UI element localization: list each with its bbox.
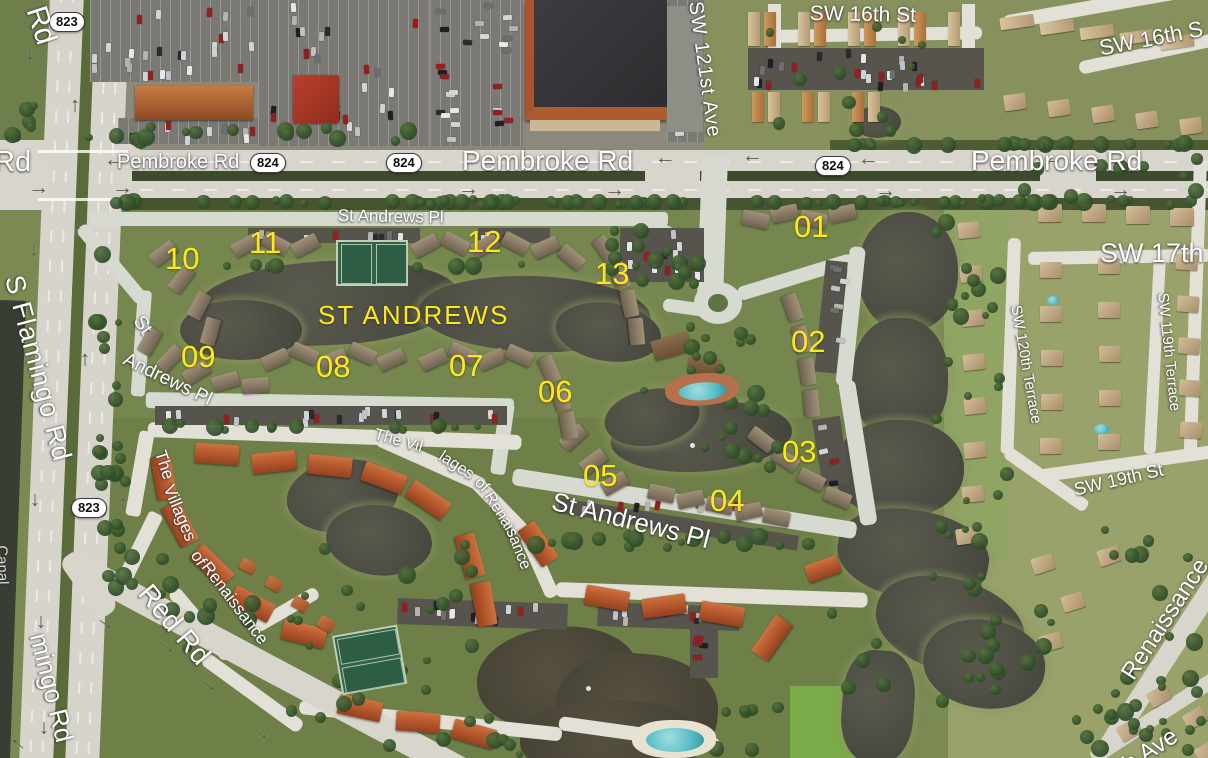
- tree: [701, 443, 709, 451]
- car: [355, 127, 360, 136]
- rd-left-edge-label: Rd: [0, 146, 31, 179]
- car: [503, 35, 512, 41]
- car: [304, 50, 309, 59]
- house: [1176, 295, 1199, 312]
- car: [760, 66, 765, 75]
- tree: [336, 696, 352, 712]
- car: [860, 54, 865, 63]
- parking-lot: [90, 0, 258, 82]
- tree: [1047, 619, 1054, 626]
- tree: [196, 195, 210, 209]
- car: [768, 59, 773, 68]
- tree: [833, 66, 846, 79]
- car: [753, 77, 759, 86]
- roundabout-island: [708, 294, 728, 312]
- tree: [856, 653, 871, 668]
- unit-02-label: 02: [791, 324, 825, 360]
- unit-05-label: 05: [583, 458, 617, 494]
- car: [206, 8, 212, 17]
- car: [247, 7, 252, 16]
- tennis-court: [341, 244, 372, 284]
- unit-08-label: 08: [316, 349, 350, 385]
- tree: [1186, 633, 1203, 650]
- house: [1179, 421, 1202, 438]
- tree: [610, 226, 619, 235]
- traffic-direction-arrow-icon: →: [858, 152, 879, 176]
- tree: [436, 597, 450, 611]
- tree: [1188, 183, 1204, 199]
- tree: [1185, 725, 1195, 735]
- tree: [990, 267, 1006, 283]
- aerial-map[interactable]: →→→→→→→→→→→→→→→→→→→→→→→→→ 82382482482482…: [0, 0, 1208, 758]
- house: [1170, 208, 1194, 226]
- tree: [1128, 718, 1140, 730]
- house: [1040, 306, 1062, 322]
- tree: [963, 497, 970, 504]
- house: [1040, 262, 1062, 278]
- tennis-courts: [332, 625, 407, 696]
- car: [503, 15, 512, 20]
- car: [166, 121, 171, 130]
- tree: [989, 684, 1001, 696]
- car: [92, 64, 97, 73]
- pembroke-rd-east-label: Pembroke Rd: [971, 145, 1142, 177]
- car: [343, 115, 349, 124]
- car: [143, 50, 148, 59]
- car: [440, 73, 449, 79]
- shield-823-south-shield: 823: [71, 498, 107, 518]
- car: [137, 15, 142, 24]
- car: [493, 110, 502, 115]
- tree: [724, 443, 739, 458]
- fountain: [586, 686, 591, 691]
- tree: [111, 519, 122, 530]
- tree: [647, 194, 662, 209]
- tree: [750, 528, 767, 545]
- tree: [203, 598, 217, 612]
- sw-17th-label: SW 17th: [1100, 238, 1204, 269]
- tree: [1035, 638, 1052, 655]
- car: [304, 411, 309, 420]
- traffic-direction-arrow-icon: →: [109, 494, 133, 515]
- tree: [228, 195, 242, 209]
- car: [222, 125, 227, 134]
- tree: [960, 200, 967, 207]
- tree: [1020, 654, 1037, 671]
- house: [962, 353, 986, 371]
- car: [207, 126, 212, 135]
- car: [319, 32, 324, 41]
- car: [917, 74, 923, 83]
- tree: [100, 465, 116, 481]
- tree: [734, 327, 747, 340]
- car: [184, 135, 189, 144]
- house: [963, 441, 987, 459]
- car: [148, 71, 153, 80]
- tree: [1018, 183, 1031, 196]
- tree: [1064, 189, 1079, 204]
- tree: [426, 605, 435, 614]
- tree: [156, 553, 169, 566]
- tree: [717, 529, 731, 543]
- tree: [961, 292, 969, 300]
- unit-10-label: 10: [165, 241, 199, 277]
- tree: [815, 199, 823, 207]
- tree: [1143, 535, 1155, 547]
- tree: [460, 540, 470, 550]
- car: [623, 617, 629, 626]
- car: [223, 32, 228, 41]
- pembroke-rd-center-label: Pembroke Rd: [462, 145, 633, 177]
- car: [363, 65, 369, 74]
- car: [224, 415, 229, 424]
- car: [125, 58, 130, 67]
- townhome-row: [802, 92, 814, 122]
- house: [1178, 379, 1201, 396]
- tree: [953, 308, 970, 325]
- car: [846, 49, 851, 58]
- backyard-pool: [1094, 424, 1109, 434]
- car: [816, 51, 821, 60]
- tree: [189, 126, 202, 139]
- fountain: [690, 443, 695, 448]
- car: [509, 26, 518, 31]
- tree: [701, 334, 710, 343]
- car: [493, 84, 502, 89]
- condo-building: [803, 389, 820, 417]
- tree: [571, 196, 584, 209]
- car: [693, 641, 702, 647]
- tree: [1080, 730, 1094, 744]
- lane-dash: [140, 189, 1208, 191]
- tree: [854, 195, 869, 210]
- unit-01-label: 01: [794, 209, 828, 245]
- tree: [767, 195, 782, 210]
- car: [450, 121, 459, 126]
- house: [1099, 346, 1121, 362]
- car: [878, 82, 883, 91]
- condo-building: [241, 377, 269, 394]
- unit-04-label: 04: [710, 483, 744, 519]
- tree: [633, 223, 649, 239]
- restaurant-building: [293, 75, 339, 123]
- car: [402, 603, 407, 612]
- tree: [318, 196, 332, 210]
- car: [187, 66, 192, 75]
- car: [533, 603, 538, 612]
- tree: [802, 538, 814, 550]
- big-box-store: [525, 0, 667, 120]
- car: [475, 21, 484, 26]
- car: [506, 605, 511, 614]
- tree: [766, 28, 775, 37]
- sw-16th-st-west-label: SW 16th St: [810, 2, 917, 28]
- tree: [565, 532, 583, 550]
- car: [450, 609, 455, 618]
- tree: [527, 536, 545, 554]
- car: [671, 230, 677, 239]
- tree: [990, 615, 1002, 627]
- car: [932, 81, 937, 90]
- car: [792, 63, 797, 72]
- car: [495, 121, 504, 127]
- tree: [592, 532, 606, 546]
- tree: [977, 646, 995, 664]
- tree: [115, 453, 126, 464]
- townhome-row: [748, 12, 760, 46]
- car: [441, 611, 446, 620]
- pembroke-rd-west-label: Pembroke Rd: [117, 151, 239, 174]
- townhome-row: [818, 92, 830, 122]
- traffic-direction-arrow-icon: →: [655, 151, 676, 175]
- car: [504, 118, 513, 123]
- traffic-direction-arrow-icon: →: [112, 176, 133, 200]
- tree: [319, 543, 331, 555]
- house: [1135, 111, 1159, 130]
- tree: [267, 423, 276, 432]
- tree: [245, 419, 259, 433]
- car: [249, 42, 255, 51]
- car: [181, 51, 186, 60]
- car: [664, 266, 670, 275]
- car: [479, 34, 488, 39]
- unit-06-label: 06: [538, 374, 572, 410]
- tree: [640, 387, 647, 394]
- tree: [938, 196, 951, 209]
- tree: [715, 364, 725, 374]
- tennis-courts: [336, 240, 408, 286]
- car: [395, 410, 401, 419]
- lake: [838, 648, 918, 758]
- car: [325, 26, 330, 35]
- tree: [910, 198, 918, 206]
- unit-03-label: 03: [782, 434, 816, 470]
- house: [957, 221, 981, 239]
- tree: [115, 319, 122, 326]
- tree: [137, 129, 155, 147]
- swimming-pool: [646, 728, 704, 752]
- car: [413, 19, 418, 28]
- car: [300, 27, 305, 36]
- car: [337, 415, 342, 424]
- tree: [739, 705, 751, 717]
- tree: [1164, 141, 1172, 149]
- car: [314, 414, 319, 423]
- car: [900, 61, 905, 70]
- tree: [550, 198, 560, 208]
- tree: [877, 111, 889, 123]
- tree: [885, 125, 897, 137]
- tree: [750, 195, 764, 209]
- car: [361, 410, 366, 419]
- tree: [182, 128, 190, 136]
- tree: [109, 128, 125, 144]
- tree: [871, 638, 882, 649]
- car: [157, 47, 162, 56]
- canal-label: Canal: [0, 545, 11, 585]
- car: [440, 27, 449, 32]
- car: [143, 72, 148, 81]
- traffic-direction-arrow-icon: →: [742, 149, 763, 173]
- car: [518, 607, 523, 616]
- tree: [206, 418, 224, 436]
- tree: [793, 73, 807, 87]
- tree: [976, 673, 984, 681]
- car: [379, 104, 385, 113]
- house: [1098, 434, 1120, 450]
- car: [975, 79, 980, 88]
- house: [1091, 105, 1115, 124]
- car: [223, 12, 229, 21]
- tree: [245, 195, 260, 210]
- tree: [1093, 704, 1103, 714]
- tree: [1191, 153, 1202, 164]
- unit-12-label: 12: [467, 224, 501, 260]
- tree: [724, 421, 738, 435]
- traffic-direction-arrow-icon: →: [25, 240, 49, 261]
- tree: [987, 302, 998, 313]
- car: [436, 64, 445, 69]
- tree: [464, 716, 475, 727]
- condo-building: [628, 317, 646, 345]
- car: [450, 108, 459, 113]
- car: [271, 113, 276, 122]
- tree: [99, 343, 110, 354]
- apartment-building: [395, 710, 440, 733]
- house: [1041, 350, 1063, 366]
- car: [484, 3, 493, 8]
- house: [1099, 390, 1121, 406]
- tree: [961, 649, 975, 663]
- car: [903, 83, 908, 92]
- tree: [102, 570, 114, 582]
- car: [436, 8, 445, 13]
- tree: [1040, 194, 1056, 210]
- tree: [994, 383, 1003, 392]
- traffic-direction-arrow-icon: →: [604, 178, 625, 202]
- tree: [112, 441, 123, 452]
- car: [309, 410, 314, 419]
- car: [375, 68, 380, 77]
- tree: [289, 419, 304, 434]
- tree: [1091, 740, 1108, 757]
- tree: [972, 522, 982, 532]
- unit-11-label: 11: [249, 225, 281, 261]
- shield-824-mid-shield: 824: [386, 153, 422, 173]
- car: [766, 81, 771, 90]
- tree: [1182, 744, 1194, 756]
- traffic-direction-arrow-icon: →: [61, 96, 85, 117]
- car: [129, 49, 134, 58]
- tree: [516, 751, 523, 758]
- traffic-direction-arrow-icon: →: [26, 490, 50, 511]
- tree: [301, 592, 309, 600]
- tree: [356, 602, 365, 611]
- tree: [454, 549, 470, 565]
- tree: [416, 198, 425, 207]
- tree: [296, 123, 312, 139]
- car: [291, 16, 297, 25]
- tree: [92, 445, 105, 458]
- car: [492, 413, 498, 422]
- tree: [689, 278, 699, 288]
- tree: [30, 102, 38, 110]
- car: [234, 417, 239, 426]
- house: [1047, 99, 1071, 118]
- traffic-direction-arrow-icon: →: [71, 350, 95, 371]
- car: [156, 9, 161, 18]
- tree: [745, 743, 759, 757]
- car: [92, 53, 97, 62]
- car: [499, 42, 508, 47]
- car: [833, 267, 842, 273]
- shield-824-east-shield: 824: [815, 156, 851, 176]
- car: [250, 127, 255, 136]
- car: [238, 64, 243, 73]
- car: [441, 112, 450, 117]
- tree: [97, 331, 110, 344]
- tree: [629, 195, 643, 209]
- tree: [1000, 467, 1014, 481]
- car: [447, 137, 456, 142]
- tree: [1072, 715, 1082, 725]
- car: [386, 230, 391, 239]
- car: [106, 43, 111, 52]
- tree: [605, 238, 619, 252]
- tree: [773, 117, 785, 129]
- car: [693, 655, 702, 660]
- tree: [662, 246, 673, 257]
- tree: [898, 36, 906, 44]
- tree: [108, 392, 123, 407]
- car: [613, 611, 619, 620]
- tree: [825, 194, 841, 210]
- house: [1098, 302, 1120, 318]
- tree: [940, 137, 956, 153]
- traffic-direction-arrow-icon: →: [875, 179, 896, 203]
- traffic-direction-arrow-icon: →: [63, 222, 87, 243]
- tree: [500, 194, 516, 210]
- townhome-row: [948, 12, 960, 46]
- house: [1041, 394, 1063, 410]
- house: [1177, 337, 1200, 354]
- traffic-direction-arrow-icon: →: [458, 177, 479, 201]
- car: [817, 424, 827, 430]
- strip-mall: [135, 86, 253, 120]
- tree: [876, 677, 891, 692]
- car: [890, 70, 895, 79]
- tree: [383, 739, 396, 752]
- tree: [26, 122, 36, 132]
- tree: [423, 657, 431, 665]
- car: [854, 69, 859, 78]
- tennis-court: [376, 244, 407, 284]
- tree: [632, 262, 640, 270]
- unit-13-label: 13: [595, 256, 629, 292]
- tree: [929, 572, 938, 581]
- st-andrews-name-label: ST ANDREWS: [318, 300, 509, 331]
- tree: [465, 565, 478, 578]
- car: [315, 54, 320, 63]
- car: [244, 134, 250, 143]
- tree: [757, 404, 770, 417]
- tree: [961, 263, 971, 273]
- shield-824-west-shield: 824: [250, 153, 286, 173]
- house: [1179, 117, 1203, 136]
- tree: [964, 673, 974, 683]
- tree: [869, 142, 877, 150]
- car: [166, 71, 171, 80]
